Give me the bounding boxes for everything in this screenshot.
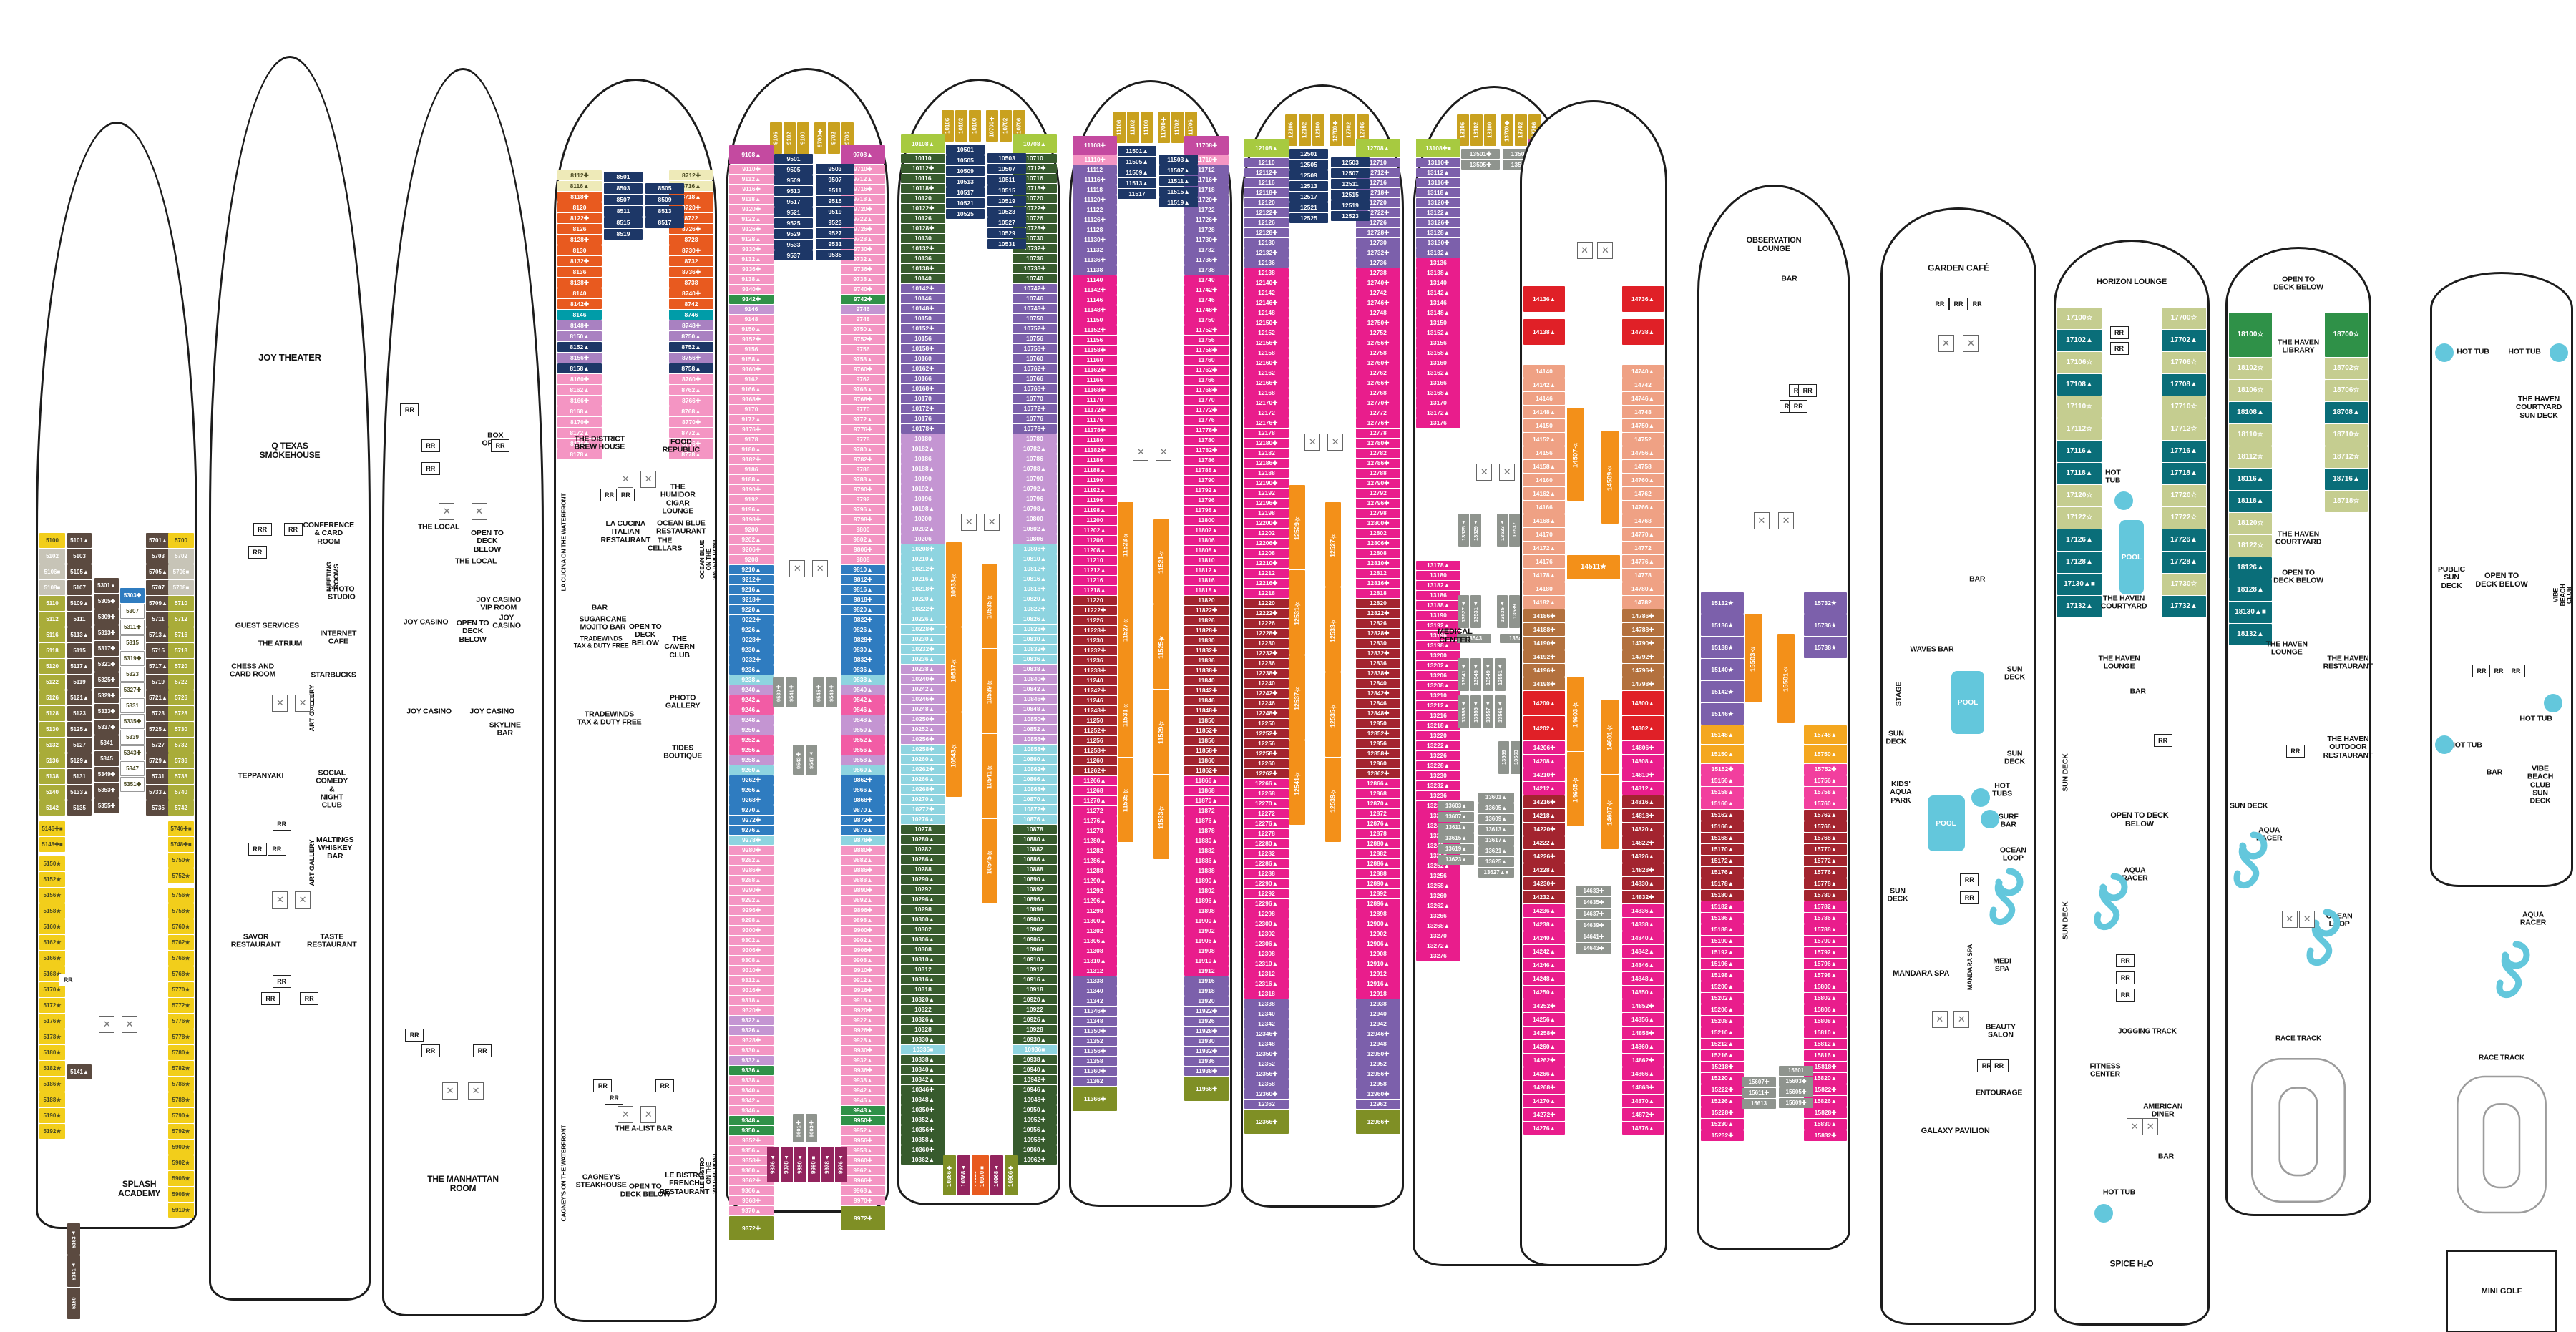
cabin: 11852✚ [1184,726,1229,735]
cabin: 9202▲ [729,535,774,544]
cabin: 9186 [729,465,774,474]
cabin: 12310▲ [1244,959,1289,969]
cabin-band: 12501125051250912513125171252112525 [1289,149,1328,223]
elevator-icon: ✕ [640,471,656,488]
cabin: 5109▲ [67,596,92,611]
venue-label: Q TEXAS SMOKEHOUSE [250,441,331,460]
cabin: 12218 [1244,589,1289,598]
cabin: 12126 [1244,218,1289,227]
cabin: 5303✚ [120,588,145,603]
cabin: 14218▲ [1523,809,1565,822]
pool: POOL [2119,520,2144,594]
cabin: 10152✚ [901,324,945,333]
cabin: 14202▲ [1523,716,1565,740]
cabin: 10198▲ [901,504,945,514]
venue-label: THE LOCAL [418,523,459,531]
cabin: 9366▲ [729,1186,774,1195]
venue-label: INTERNET CAFE [320,630,356,647]
cabin: 13601▲ [1478,793,1514,803]
cabin: 14756▲ [1622,446,1664,459]
cabin: 12808 [1356,549,1400,558]
cabin: 5351✚ [120,777,145,792]
venue-label: RACE TRACK [2275,1036,2321,1044]
elevator-icon: ✕ [272,891,288,909]
cabin: 10202▲ [901,524,945,534]
restroom-label: RR [284,523,303,536]
cabin: 13210 [1416,691,1460,700]
cabin: 9543✚ [793,745,804,775]
cabin-band: 18100☆18102☆18106☆18108▲18110☆18112☆1811… [2229,313,2272,645]
cabin: 9210▲ [729,565,774,574]
restroom-label: RR [1949,298,1968,310]
cabin: 9112▲ [729,175,774,184]
cabin: 12868 [1356,789,1400,798]
cabin: 8148✚ [557,320,602,330]
venue-label: JOY CASINO [406,707,452,715]
cabin: 5717▲ [146,659,170,674]
cabin: 14200▲ [1523,691,1565,715]
cabin: 11938✚ [1184,1067,1229,1076]
venue-label: ENTOURAGE [1976,1089,2022,1097]
cabin: 9240▲ [729,685,774,695]
cabin: 13535▲ [1497,595,1508,628]
cabin: 11928✚ [1184,1027,1229,1036]
cabin: 9702 [828,122,840,154]
cabin: 9118▲ [729,195,774,204]
pool: POOL [1928,795,1965,851]
cabin: 9742✚ [841,295,885,304]
cabin: 9192 [729,495,774,504]
deck-7-hull [382,68,544,1316]
cabin: 12238✚ [1244,669,1289,678]
cabin: 13148▲ [1416,308,1460,318]
cabin: 11212▲ [1073,566,1117,575]
cabin: 13619▲ [1438,844,1474,854]
cabin: 8146 [557,310,602,320]
cabin: 10966✚ [1005,1155,1018,1195]
cabin: 15218✚ [1701,1062,1744,1072]
cabin: 12812 [1356,569,1400,578]
cabin: 10529 [987,228,1026,238]
cabin-band: 101061010210100 [942,110,981,142]
cabin: 10511 [987,175,1026,185]
cabin: 13529▲ [1470,514,1481,547]
cabin: 15503☆ [1745,614,1762,702]
cabin: 9298▲ [729,916,774,925]
cabin: 17706☆ [2162,352,2206,373]
cabin: 10836▲ [1013,655,1057,664]
cabin: 13700✚ [1501,114,1513,146]
cabin: 10958✚ [1013,1135,1057,1145]
cabin: 9372✚ [729,1216,774,1240]
cabin: 11186 [1073,456,1117,465]
cabin: 10276▲ [901,815,945,824]
cabin: 12246 [1244,699,1289,708]
cabin: 12700✚ [1330,114,1342,146]
cabin: 13258▲ [1416,881,1460,891]
cabin: 10515 [987,185,1026,195]
cabin: 13625▲ [1478,857,1514,867]
cabin: 12128✚ [1244,228,1289,237]
cabin: 11156 [1073,336,1117,345]
cabin: 12838✚ [1356,669,1400,678]
cabin: 10268✚ [901,785,945,794]
cabin: 9110✚ [729,165,774,174]
cabin: 5776★ [168,1014,194,1029]
cabin: 15736★ [1804,614,1847,636]
cabin: 15158▲ [1701,787,1744,798]
cabin: 9216▲ [729,585,774,594]
restroom-label: RR [261,992,280,1005]
cabin: 10796 [1013,494,1057,504]
cabin: 9946▲ [841,1096,885,1105]
cabin-band: 5101▲51035105▲51075109▲51115113▲51155117… [67,533,92,816]
cabin: 12112✚ [1244,168,1289,177]
venue-label: AMERICAN DINER [2143,1103,2182,1120]
cabin: 10240✚ [901,675,945,684]
cabin: 10242▲ [901,685,945,694]
cabin: 12766✚ [1356,378,1400,388]
cabin: 13270 [1416,931,1460,941]
elevator-icon: ✕ [439,503,454,520]
cabin: 11270▲ [1073,796,1117,805]
cabin: 10900▲ [1013,915,1057,924]
cabin: 13232▲ [1416,781,1460,790]
cabin: 14162▲ [1523,487,1565,500]
cabin: 5780★ [168,1045,194,1060]
cabin: 9320✚ [729,1006,774,1015]
cabin: 5766★ [168,951,194,966]
cabin: 12535☆ [1325,672,1341,757]
cabin: 11920 [1184,996,1229,1006]
cabin: 11296▲ [1073,896,1117,906]
restroom-label: RR [2472,665,2491,677]
cabin: 9866▲ [841,785,885,795]
cabin: 8509 [645,195,684,205]
cabin: 5127 [67,738,92,753]
cabin: 17716▲ [2162,441,2206,462]
cabin: 11110✚ [1073,155,1117,165]
cabin: 11138 [1073,265,1117,275]
cabin: 13537 [1509,514,1520,547]
cabin-band: 17700☆17702▲17706☆17708▲17710☆17712☆1771… [2162,308,2206,617]
cabin: 5735 [146,800,170,816]
cabin: 11866▲ [1184,776,1229,785]
cabin: 15830▲ [1804,1119,1847,1130]
cabin: 10266▲ [901,775,945,784]
cabin: 11742✚ [1184,285,1229,295]
cabin: 14176 [1523,555,1565,568]
cabin: 12200✚ [1244,519,1289,528]
cabin: 14146 [1523,392,1565,405]
cabin: 12360✚ [1244,1089,1289,1099]
cabin: 5117▲ [67,659,92,674]
cabin: 12902 [1356,929,1400,939]
cabin: 11932✚ [1184,1047,1229,1056]
cabin: 9513 [774,186,813,196]
cabin: 9525 [774,218,813,228]
cabin: 12852✚ [1356,729,1400,738]
cabin: 9896✚ [841,906,885,915]
cabin: 17122☆ [2057,507,2102,529]
cabin: 8160✚ [557,374,602,384]
hot-tub [1971,788,1990,807]
cabin: 13172▲ [1416,408,1460,418]
cabin: 14770▲ [1622,528,1664,541]
cabin: 13100 [1484,114,1496,146]
cabin: 12940 [1356,1009,1400,1019]
cabin: 11832✚ [1184,646,1229,655]
deck-14-plan: 14136▲14138▲1414014142▲1414614148▲141501… [1520,100,1667,1324]
cabin: 8503 [604,183,643,194]
cabin: 9549✚ [826,677,837,707]
cabin: 11198▲ [1073,506,1117,515]
cabin: 12180✚ [1244,439,1289,448]
cabin: 11513▲ [1118,178,1156,188]
cabin: 10708▲ [1013,134,1057,153]
cabin: 9858▲ [841,755,885,765]
cabin: 11286▲ [1073,856,1117,866]
venue-label: MALTINGS WHISKEY BAR [316,836,353,861]
cabin: 12531☆ [1289,570,1305,655]
cabin: 14752 [1622,433,1664,446]
cabin: 9248▲ [729,715,774,725]
cabin: 11892 [1184,886,1229,896]
cabin: 12108▲ [1244,139,1289,157]
cabin: 14170 [1523,528,1565,541]
cabin: 12212 [1244,569,1289,578]
cabin: 9936✚ [841,1066,885,1075]
cabin: 9980■ [808,1147,820,1182]
cabin: 10790 [1013,474,1057,484]
cabin: 11898 [1184,906,1229,916]
cabin: 14786✚ [1622,609,1664,622]
venue-label: OPEN TO DECK BELOW [457,620,489,644]
cabin: 13216 [1416,711,1460,720]
cabin: 13108✚■ [1416,139,1460,157]
cabin: 12708▲ [1356,139,1400,157]
cabin: 10756 [1013,334,1057,343]
cabin: 15150▲ [1701,745,1744,763]
cabin: 8748✚ [669,320,713,330]
cabin: 11503▲ [1159,155,1198,165]
cabin: 5329✚ [94,688,119,703]
cabin: 12742 [1356,288,1400,298]
cabin: 12340 [1244,1009,1289,1019]
cabin: 10842▲ [1013,685,1057,694]
venue-label: OCEAN LOOP [2000,847,2026,863]
cabin: 12760✚ [1356,358,1400,368]
restroom-label: RR [593,1079,612,1092]
cabin: 9810▲ [841,565,885,574]
cabin: 9268✚ [729,795,774,805]
cabin: 14210✚ [1523,768,1565,781]
cabin: 12746✚ [1356,298,1400,308]
cabin-band: 11501▲11505▲11509▲11513▲11517 [1118,146,1156,199]
cabin: 10102 [955,110,967,142]
cabin-band: 9501950595099513951795219525952995339537 [774,154,813,260]
cabin: 10282 [901,845,945,854]
cabin: 15828✚ [1804,1107,1847,1118]
cabin: 13555▲ [1470,695,1481,728]
cabin: 11858✚ [1184,746,1229,755]
cabin: 9136✚ [729,265,774,274]
cabin: 12802 [1356,529,1400,538]
cabin: 9770 [841,405,885,414]
elevator-icon: ✕ [1327,434,1343,451]
cabin: 11760 [1184,356,1229,365]
cabin: 11366✚ [1073,1087,1117,1111]
cabin: 14641✚ [1576,931,1611,942]
cabin: 10220▲ [901,594,945,604]
cabin: 12946✚ [1356,1029,1400,1039]
venue-label: THE LOCAL [455,557,497,565]
cabin: 13146 [1416,298,1460,308]
cabin: 12511 [1331,179,1370,189]
cabin: 9280✚ [729,846,774,855]
cabin: 14836▲ [1622,904,1664,917]
cabin: 10876▲ [1013,815,1057,824]
cabin: 15136★ [1701,614,1744,636]
cabin: 14250▲ [1523,986,1565,999]
cabin: 10832✚ [1013,645,1057,654]
cabin: 15176▲ [1701,867,1744,878]
cabin: 5125▲ [67,722,92,737]
cabin: 5135 [67,800,92,816]
cabin: 13222▲ [1416,741,1460,750]
cabin: 9256▲ [729,745,774,755]
cabin: 8736✚ [669,267,713,277]
cabin: 14186✚ [1523,609,1565,622]
cabin: 14736▲ [1622,286,1664,312]
cabin: 13260 [1416,891,1460,901]
cabin: 11836 [1184,656,1229,665]
venue-label: SUN DECK [1887,888,1908,904]
cabin-band: 12708▲1271012712✚1271612718✚1272012722✚1… [1356,139,1400,1134]
restroom-label: RR [2154,734,2172,747]
cabin: 9862✚ [841,775,885,785]
cabin: 11501▲ [1118,146,1156,156]
cabin: 5192★ [39,1124,65,1139]
cabin: 9108▲ [729,145,774,164]
cabin: 10310▲ [901,955,945,964]
cabin: 10360✚ [901,1145,945,1155]
cabin: 12513 [1289,181,1328,191]
cabin: 17130▲■ [2057,574,2102,595]
venue-label: SKYLINE BAR [489,722,521,738]
cabin: 12948 [1356,1039,1400,1049]
cabin: 11158✚ [1073,346,1117,355]
cabin: 12798 [1356,509,1400,518]
cabin: 12786✚ [1356,459,1400,468]
cabin: 5701▲ [146,533,170,548]
cabin: 15802▲ [1804,993,1847,1004]
cabin: 9537 [774,250,813,260]
restroom-label: RR [605,1092,623,1105]
cabin: 13268▲ [1416,921,1460,931]
cabin: 13607▲ [1438,812,1474,822]
venue-label: CAGNEY'S STEAKHOUSE [576,1174,627,1190]
cabin: 5307 [120,604,145,619]
cabin: 11936 [1184,1057,1229,1066]
cabin: 9798✚ [841,515,885,524]
cabin: 12523 [1331,211,1370,221]
cabin: 12828✚ [1356,629,1400,638]
cabin: 11268 [1073,786,1117,795]
cabin: 9322▲ [729,1016,774,1025]
deck-10-plan: 10106101021010010700✚107021070610108▲101… [897,79,1060,1324]
cabin: 10200 [901,514,945,524]
cabin: 9918▲ [841,996,885,1005]
cabin-band: 850185038507851185158519 [604,172,643,240]
cabin: 12248✚ [1244,709,1289,718]
cabin: 10535☆ [982,564,997,648]
cabin: 9142✚ [729,295,774,304]
cabin: 8768▲ [669,406,713,416]
cabin: 12906▲ [1356,939,1400,949]
cabin: 11312 [1073,966,1117,976]
cabin: 12298 [1244,909,1289,919]
cabin: 15748▲ [1804,725,1847,744]
cabin: 11102 [1127,112,1139,143]
cabin: 9278✚ [729,836,774,845]
venue-label: MANDARA SPA [1968,944,1975,990]
cabin: 12122✚ [1244,208,1289,217]
cabin: 9920✚ [841,1006,885,1015]
restroom-label: RR [2489,665,2508,677]
cabin: 8166✚ [557,396,602,406]
hot-tub [1981,810,1999,828]
deck-9-plan: 9106910291009700✚970297069108▲9110✚9112▲… [726,68,889,1324]
cabin: 14246▲ [1523,959,1565,971]
cabin: 13276 [1416,951,1460,961]
elevator-icon: ✕ [99,1016,114,1033]
venue-label: OPEN TO DECK BELOW [629,623,662,647]
cabin: 5319✚ [120,651,145,666]
cabin: 11856 [1184,736,1229,745]
pool: POOL [1951,671,1984,734]
cabin: 11256 [1073,736,1117,745]
cabin: 11302 [1073,926,1117,936]
cabin: 15790▲ [1804,936,1847,946]
cabin: 15613 [1742,1099,1776,1109]
cabin: 9519 [816,207,854,217]
cabin: 9212✚ [729,575,774,584]
cabin: 11168✚ [1073,386,1117,395]
cabin: 11238✚ [1073,666,1117,675]
cabin: 12196✚ [1244,499,1289,508]
deck-12-plan: 12106121021210012700✚127021270612108▲121… [1241,84,1404,1324]
cabin: 5178★ [39,1029,65,1044]
cabin: 5702 [168,549,194,564]
cabin-band: 14736▲14738▲14740▲1474214746▲1474814750▲… [1622,286,1664,1135]
cabin: 13118▲ [1416,188,1460,197]
cabin: 8505 [645,183,684,194]
cabin: 12519 [1331,200,1370,210]
cabin: 9328✚ [729,1036,774,1045]
cabin: 9162 [729,375,774,384]
cabin: 10517 [946,187,985,197]
cabin: 11260 [1073,756,1117,765]
cabin: 15148▲ [1701,725,1744,744]
cabin: 10120 [901,194,945,203]
cabin: 9922▲ [841,1016,885,1025]
cabin: 12517 [1289,192,1328,202]
cabin: 15206▲ [1701,1004,1744,1015]
elevator-icon: ✕ [1963,335,1979,352]
cabin: 9776✚ [841,425,885,434]
cabin: 11798▲ [1184,506,1229,515]
